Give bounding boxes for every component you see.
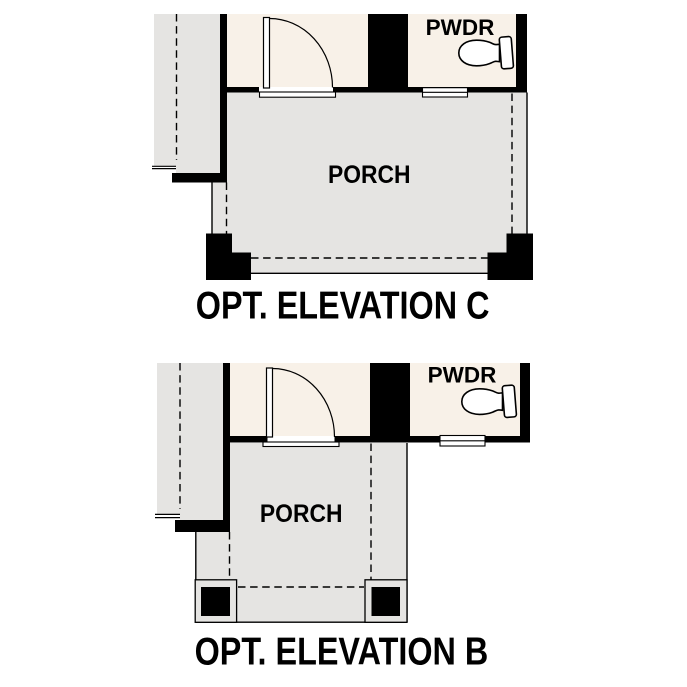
- svg-text:PWDR: PWDR: [426, 15, 495, 40]
- svg-text:OPT. ELEVATION B: OPT. ELEVATION B: [195, 630, 489, 674]
- svg-text:PWDR: PWDR: [428, 363, 497, 388]
- svg-text:PORCH: PORCH: [260, 500, 343, 528]
- svg-text:PORCH: PORCH: [328, 161, 411, 189]
- svg-text:OPT. ELEVATION C: OPT. ELEVATION C: [196, 284, 490, 328]
